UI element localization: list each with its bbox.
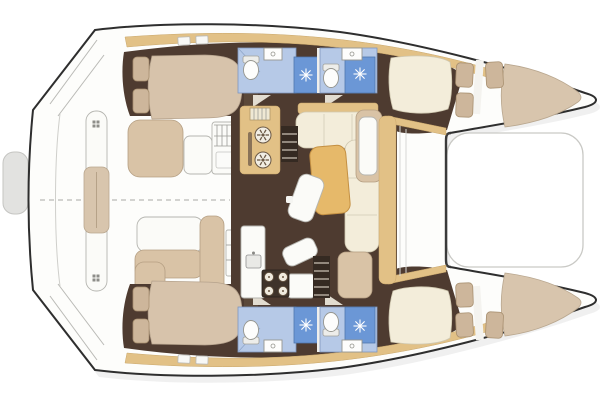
sink-icon [264, 48, 282, 60]
port-coffee-table [184, 136, 212, 174]
pillow [133, 287, 149, 311]
starboard-forward-cabin-bed [389, 287, 452, 344]
port-settee [128, 120, 183, 177]
shower-head-icon [300, 319, 313, 332]
port-companionway-steps [281, 126, 298, 162]
dinghy-pad [3, 152, 28, 214]
trampoline [446, 133, 583, 267]
toilet-icon [323, 64, 339, 88]
toilet-icon [243, 321, 259, 345]
sink-icon [342, 48, 362, 60]
burner-icon [255, 152, 271, 168]
pillow [456, 93, 474, 118]
pillow [133, 319, 149, 343]
port-forward-cabin-bed [389, 56, 452, 113]
pillow [455, 313, 473, 338]
front-sideboard [379, 116, 396, 284]
toilet-icon [243, 56, 259, 80]
sink-icon [342, 340, 362, 352]
boat-floor-plan [0, 0, 600, 400]
double-bed-mattress [148, 281, 242, 345]
sink-icon [264, 340, 282, 352]
shower-head-icon [354, 320, 367, 333]
floor-plan-svg [0, 0, 600, 400]
four-burner-stove [262, 270, 289, 297]
full-beam-aft-bench [84, 111, 109, 291]
faucet-icon [252, 252, 255, 255]
sink-drainer-grid [250, 108, 270, 120]
shower-head-icon [300, 69, 313, 82]
starboard-dining-table [137, 217, 203, 252]
port-forward-head [320, 48, 377, 93]
pillow [456, 283, 474, 308]
pillow [133, 57, 149, 81]
pillow [485, 62, 503, 89]
burner-icon [255, 127, 271, 143]
toilet-icon [323, 313, 339, 337]
pillow [485, 312, 503, 339]
nav-seat [338, 252, 372, 298]
galley-tall-unit [240, 106, 280, 174]
starboard-companionway-steps [313, 256, 330, 298]
forward-chaise-cushion [359, 117, 377, 175]
starboard-forward-head [320, 307, 377, 352]
pillow [455, 63, 473, 88]
table-leg [286, 196, 293, 203]
pillow [133, 89, 149, 113]
duvet [501, 273, 581, 336]
shower-head-icon [354, 68, 367, 81]
double-bed-mattress [148, 55, 242, 119]
galley-sink [246, 255, 261, 268]
